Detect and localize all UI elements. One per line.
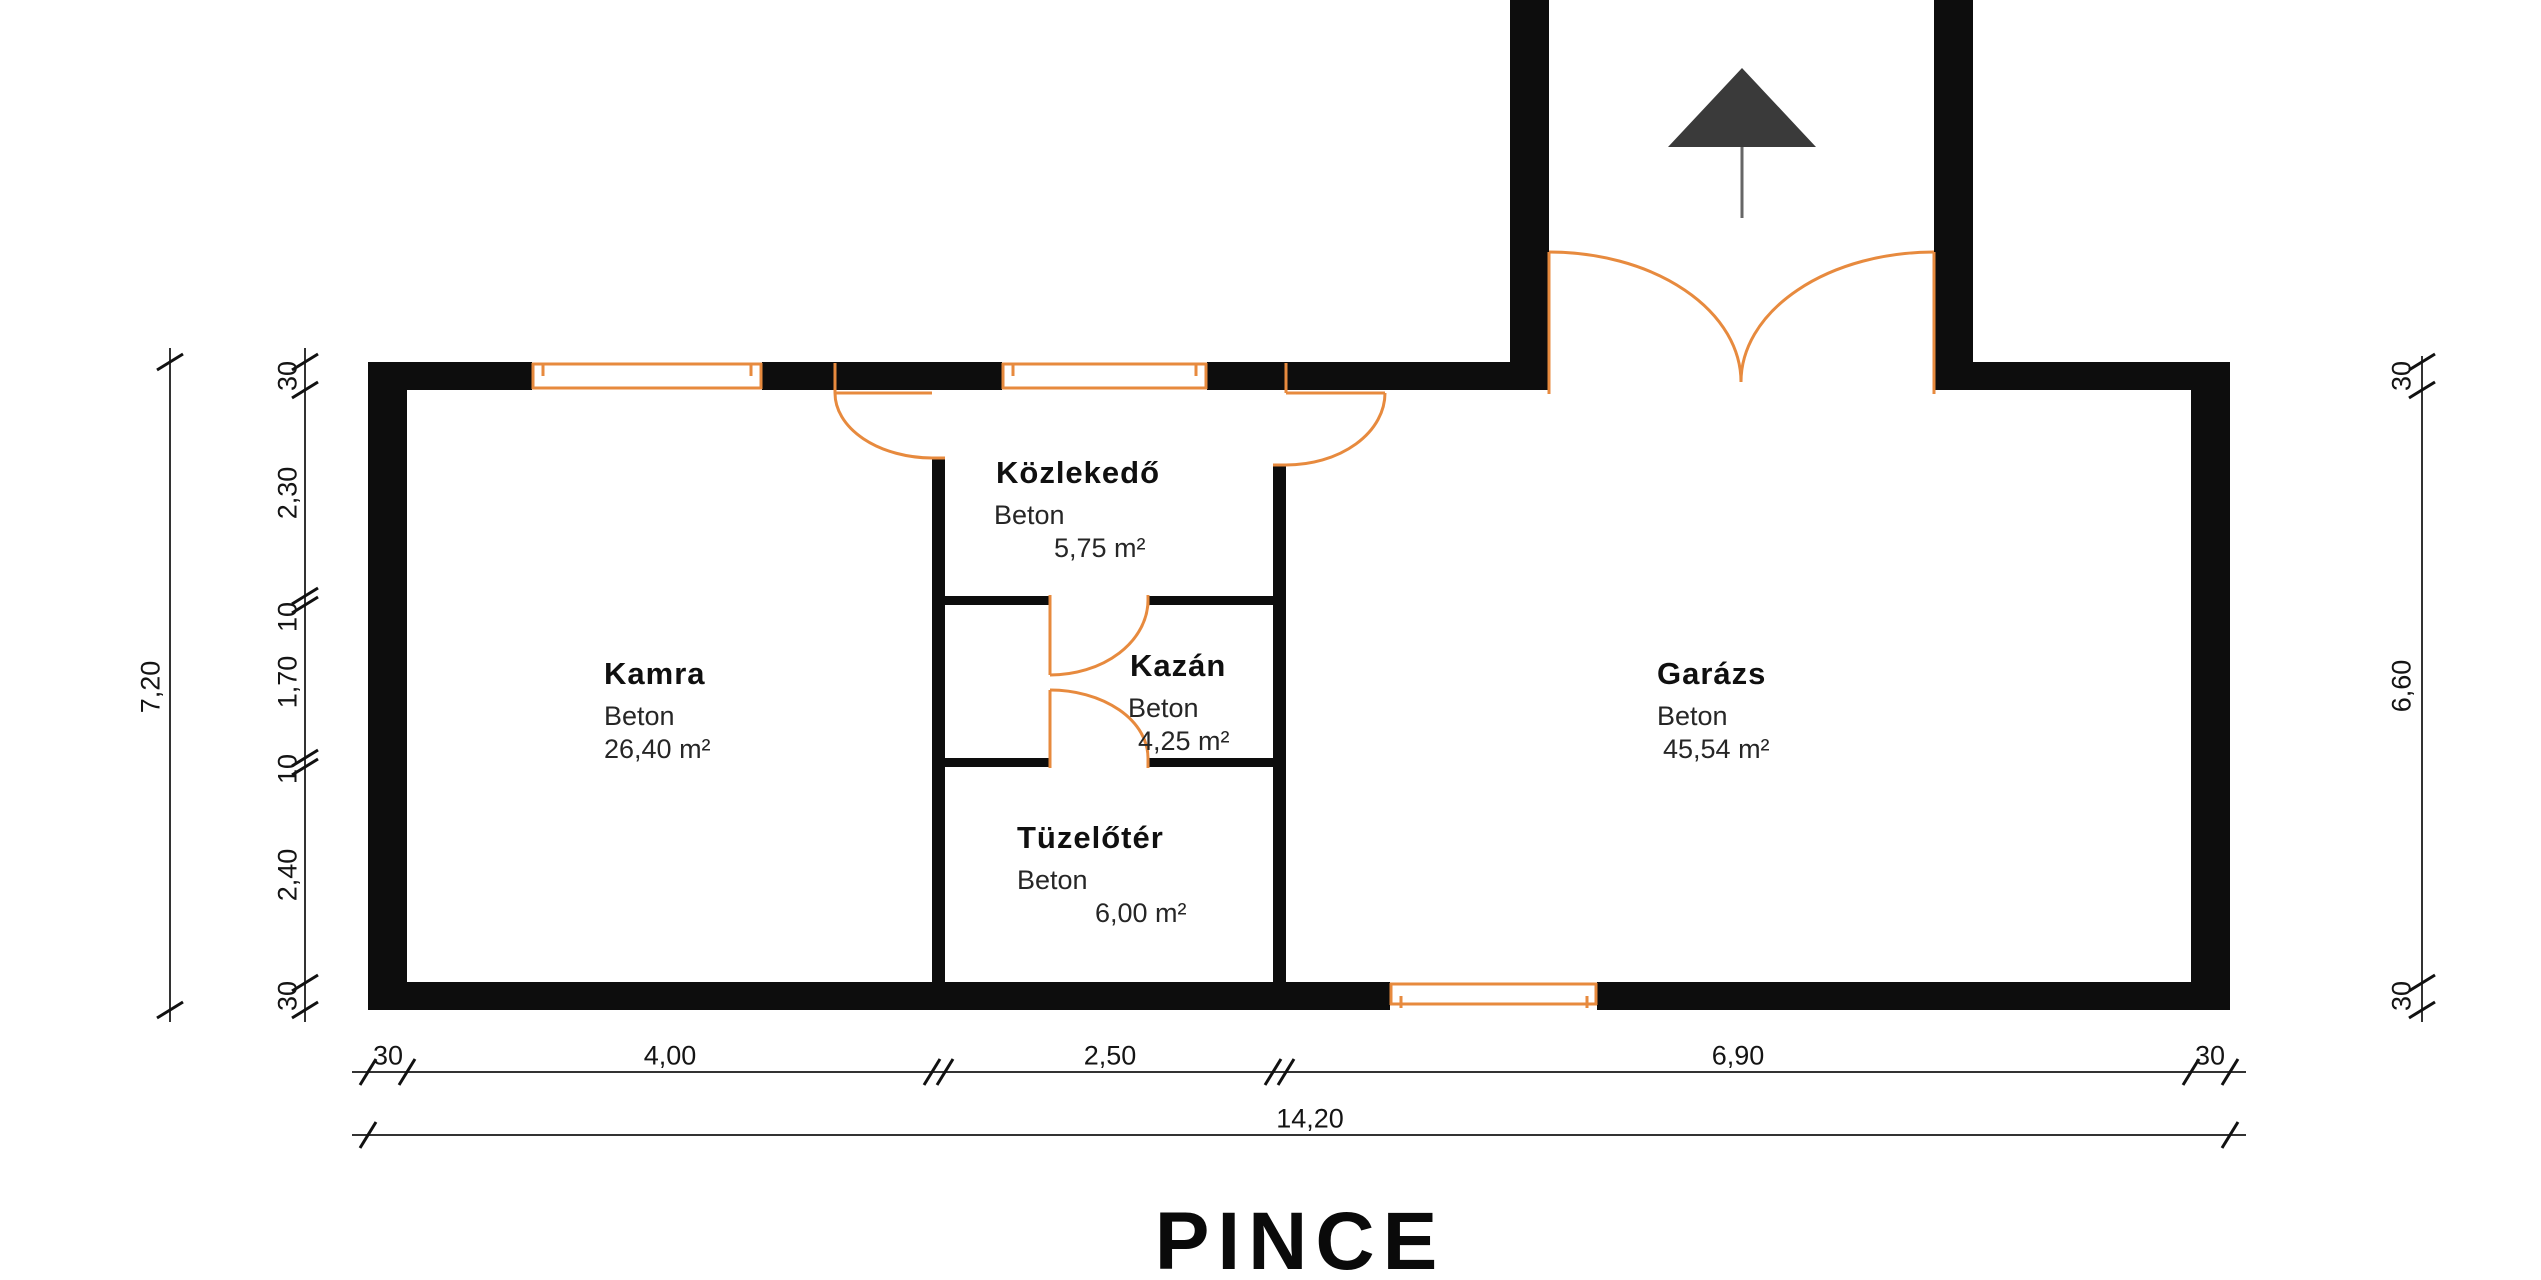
dim-left-170: 1,70 xyxy=(273,656,304,709)
dim-left-total: 7,20 xyxy=(136,661,167,714)
room-area-tuzeloter: 6,00 m² xyxy=(1095,898,1187,929)
dim-left-10-a: 10 xyxy=(273,602,304,632)
window-kamra xyxy=(532,363,762,389)
room-material-kozlekedo: Beton xyxy=(994,500,1065,531)
dim-left-240: 2,40 xyxy=(273,849,304,902)
floor-plan-canvas: Kamra Beton 26,40 m² Közlekedő Beton 5,7… xyxy=(0,0,2541,1280)
dim-left-230: 2,30 xyxy=(273,467,304,520)
room-area-kozlekedo: 5,75 m² xyxy=(1054,533,1146,564)
garage-door xyxy=(1549,252,1934,394)
dim-right-30-bottom: 30 xyxy=(2387,981,2418,1011)
entry-arrow-icon xyxy=(1668,68,1816,218)
room-title-tuzeloter: Tüzelőtér xyxy=(1017,820,1164,856)
room-title-garazs: Garázs xyxy=(1657,656,1766,692)
dim-bottom-30-right: 30 xyxy=(2195,1041,2225,1072)
dim-right-660: 6,60 xyxy=(2387,660,2418,713)
room-material-tuzeloter: Beton xyxy=(1017,865,1088,896)
dim-bottom-400: 4,00 xyxy=(644,1041,697,1072)
dimension-ticks xyxy=(157,354,2435,1148)
room-title-kazan: Kazán xyxy=(1130,648,1226,684)
dim-bottom-250: 2,50 xyxy=(1084,1041,1137,1072)
dim-left-30-bottom: 30 xyxy=(273,981,304,1011)
dim-left-10-b: 10 xyxy=(273,754,304,784)
room-area-kazan: 4,25 m² xyxy=(1138,726,1230,757)
room-area-garazs: 45,54 m² xyxy=(1663,734,1770,765)
window-garazs xyxy=(1390,983,1597,1008)
floor-plan-drawing xyxy=(0,0,2541,1280)
page-title: PINCE xyxy=(1155,1195,1446,1280)
room-title-kozlekedo: Közlekedő xyxy=(996,455,1160,491)
dim-bottom-690: 6,90 xyxy=(1712,1041,1765,1072)
dim-bottom-30-left: 30 xyxy=(373,1041,403,1072)
room-material-kamra: Beton xyxy=(604,701,675,732)
room-area-kamra: 26,40 m² xyxy=(604,734,711,765)
room-title-kamra: Kamra xyxy=(604,656,706,692)
dim-bottom-total: 14,20 xyxy=(1276,1104,1344,1135)
dim-left-30-top: 30 xyxy=(273,361,304,391)
window-kozlekedo xyxy=(1002,363,1207,389)
walls xyxy=(368,0,2230,1010)
dim-right-30-top: 30 xyxy=(2387,361,2418,391)
room-material-kazan: Beton xyxy=(1128,693,1199,724)
room-material-garazs: Beton xyxy=(1657,701,1728,732)
